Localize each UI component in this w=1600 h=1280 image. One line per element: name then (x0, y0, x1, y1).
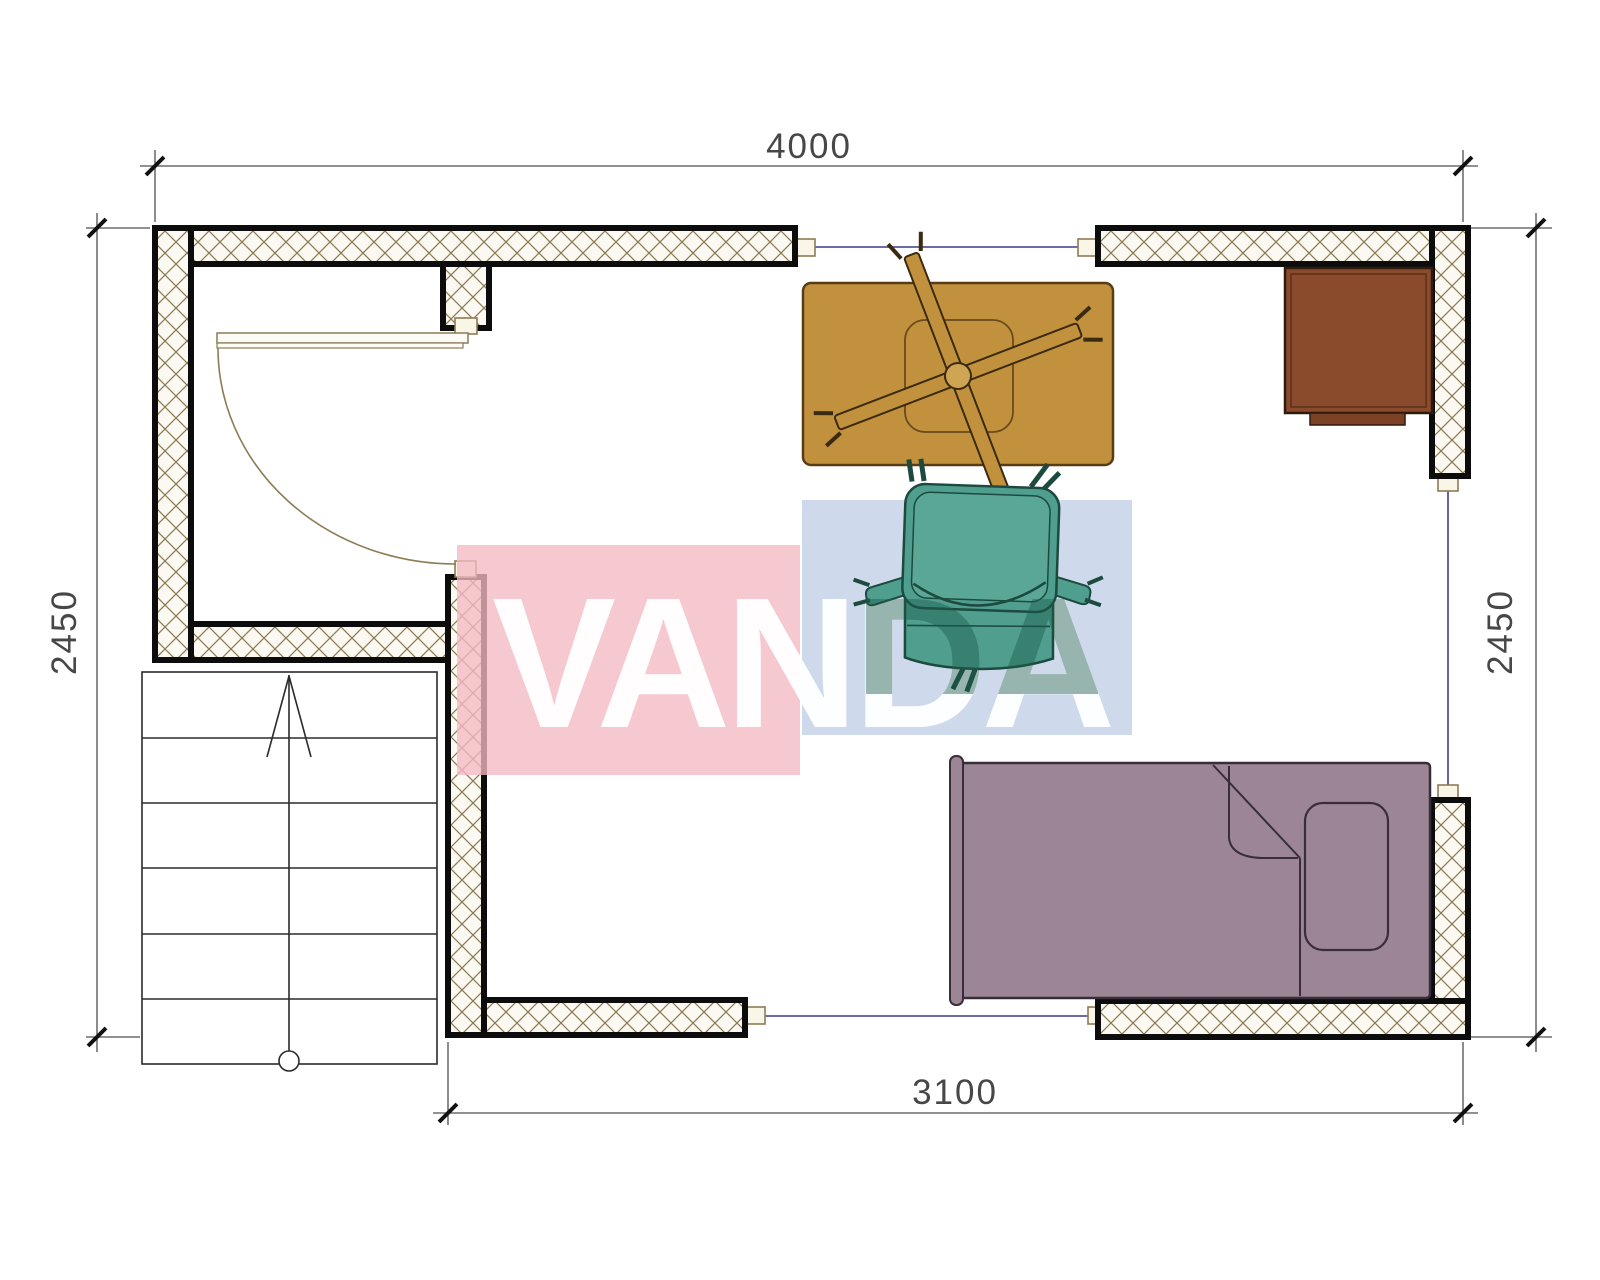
cabinet-tab (1310, 413, 1405, 425)
door-swing-arc (218, 348, 456, 564)
door-leaf-edge (217, 343, 463, 348)
wall-bottom-left (448, 1000, 745, 1035)
dimension-value-bottom: 3100 (912, 1073, 998, 1112)
cabinet (1285, 268, 1432, 425)
bed-headboard (950, 756, 963, 1005)
dimension-value-right: 2450 (1481, 589, 1520, 675)
door-jamb (455, 318, 477, 334)
floor-plan-drawing: 4000 3100 2450 2450 (0, 0, 1600, 1280)
extension-lines-left (86, 228, 150, 1037)
cabinet-body (1285, 268, 1432, 413)
wall-right-upper (1432, 228, 1468, 476)
bed-mattress (958, 763, 1430, 998)
wall-top-left (155, 228, 795, 264)
wall-top-right (1098, 228, 1468, 264)
floor-plan-canvas: 4000 3100 2450 2450 (0, 0, 1600, 1280)
wall-room1-bottom (155, 624, 448, 660)
single-bed (950, 756, 1430, 1005)
dimension-value-top: 4000 (766, 127, 852, 166)
window-jamb (1438, 477, 1458, 491)
dimension-value-left: 2450 (45, 589, 84, 675)
door-leaf (217, 333, 468, 343)
wall-bottom-right (1098, 1001, 1468, 1037)
staircase (142, 672, 437, 1071)
door (217, 318, 477, 577)
wall-left (155, 228, 191, 660)
stair-start-marker (279, 1051, 299, 1071)
window-jamb (1438, 785, 1458, 799)
